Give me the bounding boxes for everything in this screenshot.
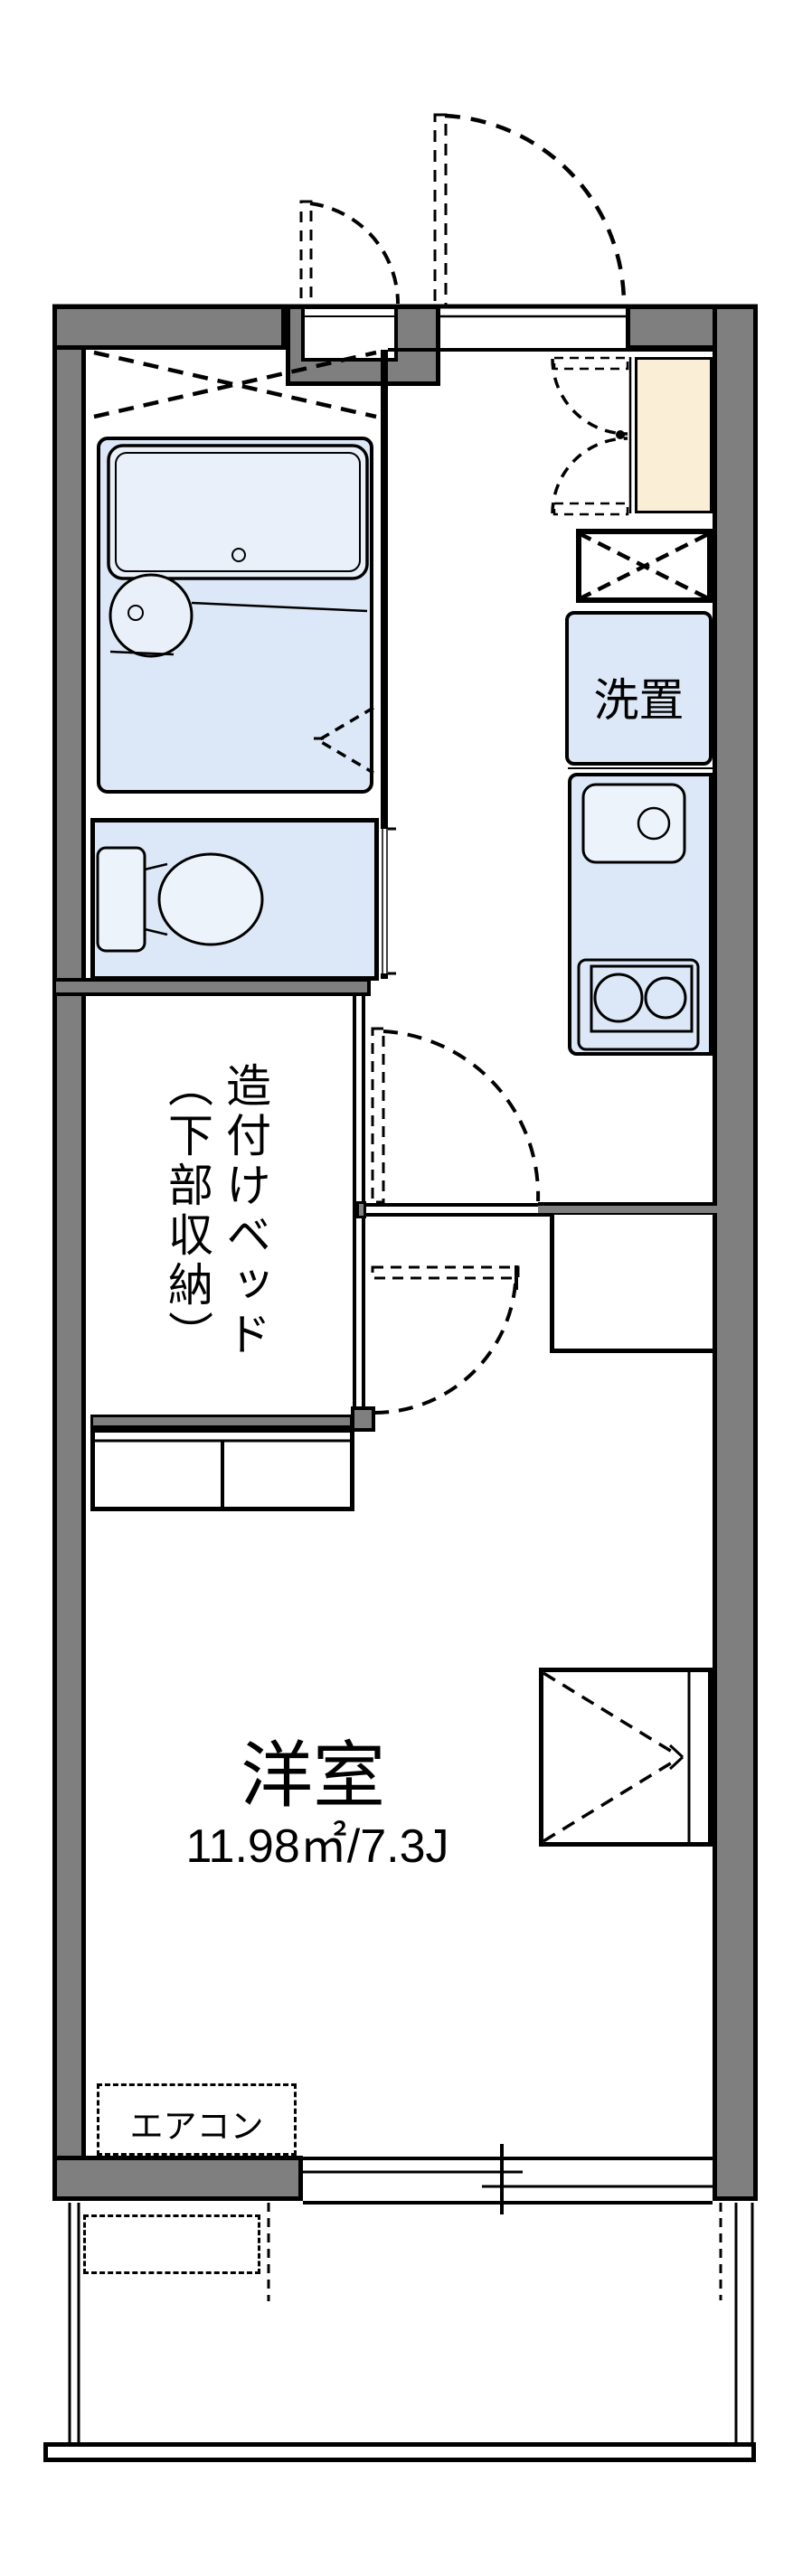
floor-plan: 洗置 造付けベッド （下部収納） 洋室 11.98㎡/7.3J エアコン bbox=[0, 0, 812, 2576]
wall-top-left bbox=[52, 305, 286, 350]
room-area: 11.98㎡/7.3J bbox=[123, 1808, 512, 1876]
wall-bath-right-upper bbox=[381, 350, 388, 829]
shoe-cabinet bbox=[576, 529, 713, 603]
wall-bed-end-block bbox=[351, 1406, 375, 1432]
kitchen-counter bbox=[568, 773, 713, 1056]
wall-toilet-bed-divider bbox=[52, 978, 371, 996]
built-in-bed-label: 造付けベッド （下部収納） bbox=[158, 1030, 274, 1392]
laundry-label: 洗置 bbox=[565, 664, 713, 729]
wall-bed-bottom bbox=[90, 1415, 353, 1428]
built-in-bed-label-line1: 造付けベッド bbox=[220, 1062, 270, 1360]
aircon-label: エアコン bbox=[97, 2099, 297, 2148]
bathroom-unit-panel bbox=[97, 437, 373, 794]
storage-door-swing bbox=[301, 202, 398, 316]
balcony-outer-wall bbox=[43, 2442, 756, 2462]
room-door-swing bbox=[371, 1265, 518, 1413]
bed-end-shelf bbox=[90, 1428, 354, 1511]
hall-door-swing bbox=[373, 1029, 538, 1202]
hall-threshold-cap bbox=[356, 1201, 366, 1218]
refrigerator-space bbox=[550, 1215, 713, 1353]
built-in-bed-label-line2: （下部収納） bbox=[162, 1062, 212, 1360]
toilet-room bbox=[90, 818, 379, 981]
wall-right bbox=[713, 305, 758, 2201]
genkan-floor bbox=[635, 357, 713, 513]
window-band bbox=[303, 2157, 713, 2205]
genkan-double-door bbox=[552, 357, 630, 514]
room-name: 洋室 bbox=[177, 1717, 448, 1822]
balcony-storage-dashed bbox=[83, 2214, 260, 2274]
toilet-door bbox=[382, 829, 396, 973]
wall-bottom-left bbox=[52, 2156, 303, 2201]
closet-box bbox=[539, 1668, 713, 1847]
wall-bath-right-lower bbox=[381, 973, 388, 979]
hall-threshold bbox=[364, 1203, 538, 1217]
wall-left bbox=[52, 305, 86, 2201]
entrance-door-swing bbox=[435, 115, 626, 316]
